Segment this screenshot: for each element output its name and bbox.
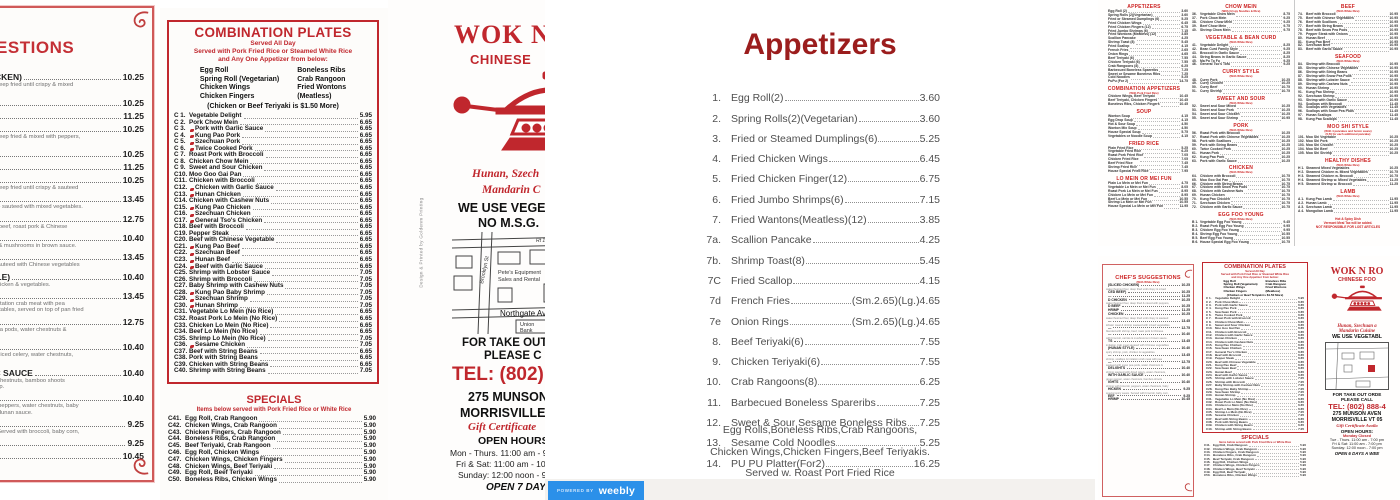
dotted-leader xyxy=(1243,208,1280,209)
mini-restaurant-tagline: CHINESE FOO xyxy=(1314,277,1400,283)
dotted-leader xyxy=(1142,153,1180,154)
dotted-leader xyxy=(1245,227,1283,228)
specials-title: SPECIALS xyxy=(160,394,388,406)
dotted-leader xyxy=(848,181,918,182)
menu-item-row: 13.45 xyxy=(0,194,144,204)
dotted-leader xyxy=(0,259,121,260)
dotted-leader xyxy=(1220,154,1280,155)
spicy-chili-icon xyxy=(190,129,194,132)
appetizer-item-row: 8.Beef Teriyaki(6)7.55 xyxy=(705,328,940,348)
dotted-leader xyxy=(0,182,121,183)
dotted-leader xyxy=(255,150,358,151)
chefs-menu-items: (SLICED CHICKEN)10.25waterchestnut flour… xyxy=(0,72,144,464)
dotted-leader xyxy=(1153,137,1180,138)
dotted-leader xyxy=(285,288,357,289)
dotted-leader xyxy=(1227,27,1282,28)
appetizer-item-row: 7eOnion Rings(Sm.2.65)(Lg.)4.65 xyxy=(705,307,940,327)
dotted-leader xyxy=(266,157,358,158)
menu-item-row: DELIGHTS10.40 xyxy=(0,342,144,352)
dotted-leader xyxy=(1326,39,1389,40)
dotted-leader xyxy=(1113,296,1179,297)
takeout-line-1: FOR TAKE OUT xyxy=(462,337,547,349)
menu-item-row: B 6.House Special Egg Foo Young10.75 xyxy=(1192,241,1290,245)
dotted-leader xyxy=(1353,78,1389,79)
menu-item-row: HICKEN9.25 xyxy=(0,419,144,429)
dotted-leader xyxy=(1131,118,1180,119)
specials-items: C41.Egg Roll, Crab Rangoon5.90C42.Chicke… xyxy=(160,416,388,484)
appetizer-option: Chicken Fingers xyxy=(200,93,279,102)
appetizer-option: (Meatless) xyxy=(297,93,346,102)
dotted-leader xyxy=(1249,419,1297,420)
dotted-leader xyxy=(1236,177,1280,178)
menu-item-row: C50.Boneless Ribs, Chicken Wings5.90 xyxy=(168,477,376,484)
menu-item-row: WITH GARLIC SAUCE10.40 xyxy=(0,368,144,378)
dotted-leader xyxy=(1134,121,1181,122)
dotted-leader xyxy=(250,301,358,302)
appetizer-option: Boneless Ribs xyxy=(297,67,346,76)
dotted-leader xyxy=(1359,70,1388,71)
dotted-leader xyxy=(1348,101,1389,102)
appetizer-option: Fried Wontons xyxy=(297,84,346,93)
dotted-leader xyxy=(878,141,918,142)
dotted-leader xyxy=(1241,299,1297,300)
appetizer-item-row: 9.Chicken Teriyaki(6)7.55 xyxy=(705,348,940,368)
dotted-leader xyxy=(270,366,357,367)
dotted-leader xyxy=(1160,20,1180,21)
dotted-leader xyxy=(1247,333,1297,334)
dotted-leader xyxy=(0,324,121,325)
dotted-leader xyxy=(1328,204,1389,205)
dotted-leader xyxy=(1338,23,1389,24)
dotted-leader xyxy=(1242,356,1297,357)
dotted-leader xyxy=(1121,399,1180,400)
combo-items: C 1.Vegetable Delight5.95C 2.Pork Chow M… xyxy=(174,113,372,375)
dotted-leader xyxy=(1113,355,1179,356)
spicy-chili-icon xyxy=(190,207,194,210)
dotted-leader xyxy=(1343,105,1389,106)
dotted-leader xyxy=(1249,409,1297,410)
cuisine-line-1: Hunan, Szech xyxy=(472,168,539,180)
dotted-leader xyxy=(1145,375,1179,376)
dotted-leader xyxy=(1134,165,1181,166)
dotted-leader xyxy=(242,248,358,249)
powered-by-label: POWERED BY xyxy=(557,488,594,493)
spicy-chili-icon xyxy=(190,292,194,295)
spicy-chili-icon xyxy=(190,188,194,191)
mini-wok-logo-icon xyxy=(1330,285,1384,317)
hours-line-1: Mon - Thurs. 11:00 am - 9:30 xyxy=(450,448,559,458)
dotted-leader xyxy=(260,353,358,354)
corner-flourish-icon xyxy=(132,10,150,28)
restaurant-name: WOK N xyxy=(454,20,551,50)
dotted-leader xyxy=(805,344,919,345)
dotted-leader xyxy=(0,298,121,299)
dotted-leader xyxy=(1334,212,1389,213)
menu-item-row: 55.Sweet and Sour Shrimp10.95 xyxy=(1192,117,1290,121)
dotted-leader xyxy=(1227,20,1282,21)
dotted-leader xyxy=(1244,185,1281,186)
menu-item-row: HRIMP10.45 xyxy=(0,451,144,461)
appetizer-option: Chicken Wings xyxy=(200,84,279,93)
dotted-leader xyxy=(1254,406,1297,407)
dotted-leader xyxy=(1238,309,1298,310)
dotted-leader xyxy=(1249,389,1297,390)
dotted-leader xyxy=(1349,35,1389,36)
dotted-leader xyxy=(791,303,851,304)
dotted-leader xyxy=(1255,459,1299,460)
gift-certificate-line: Gift Certificate xyxy=(468,421,536,433)
dotted-leader xyxy=(1129,51,1180,52)
dotted-leader xyxy=(273,448,362,449)
dotted-leader xyxy=(1158,102,1178,103)
dotted-leader xyxy=(1351,82,1389,83)
dotted-leader xyxy=(1253,429,1298,430)
dotted-leader xyxy=(1353,185,1389,186)
appetizer-item-row: 6.Fried Jumbo Shrimps(6)7.15 xyxy=(705,185,940,205)
menu-item-row: EEF9.25 xyxy=(0,438,144,448)
thumbnail-footer-note: NOT RESPONSIBLE FOR LOST ARTICLES xyxy=(1298,225,1398,229)
dotted-leader xyxy=(1136,125,1180,126)
weebly-logo: weebly xyxy=(599,485,635,497)
dotted-leader xyxy=(790,324,851,325)
appetizer-item-row: 5.Fried Chicken Finger(12)6.75 xyxy=(705,165,940,185)
svg-text:Bank: Bank xyxy=(520,328,533,334)
menu-item-row: C40.Shrimp with String Beans7.05 xyxy=(174,368,372,375)
dotted-leader xyxy=(270,327,357,328)
dotted-leader xyxy=(271,203,358,204)
dotted-leader xyxy=(1231,201,1281,202)
dotted-leader xyxy=(1128,292,1179,293)
dotted-leader xyxy=(1258,403,1297,404)
dotted-leader xyxy=(242,137,358,138)
mini-restaurant-name: WOK N RO xyxy=(1314,266,1400,277)
dotted-leader xyxy=(1349,85,1389,86)
svg-text:Sales and Rental: Sales and Rental xyxy=(498,277,540,283)
appetizer-item-row: 7.Fried Wantons(Meatless)(12)3.85 xyxy=(705,206,940,226)
appetizer-option: Crab Rangoon xyxy=(297,76,346,85)
dotted-leader xyxy=(1131,79,1181,80)
dotted-leader xyxy=(0,131,121,132)
dotted-leader xyxy=(1232,150,1280,151)
address-line-2: MORRISVILLE xyxy=(460,406,545,420)
dotted-leader xyxy=(1233,23,1282,24)
dotted-leader xyxy=(1243,346,1298,347)
dotted-leader xyxy=(12,279,121,280)
dotted-leader xyxy=(277,441,361,442)
dotted-leader xyxy=(1137,40,1181,41)
dotted-leader xyxy=(1164,208,1179,209)
dotted-leader xyxy=(1250,243,1281,244)
dotted-leader xyxy=(1239,50,1283,51)
dotted-leader xyxy=(35,375,121,376)
dotted-leader xyxy=(276,190,358,191)
combo-title: COMBINATION PLATES xyxy=(174,25,372,40)
cuisine-line-2: Mandarin C xyxy=(482,184,540,196)
dotted-leader xyxy=(1117,395,1182,396)
dotted-leader xyxy=(253,216,358,217)
address-line-1: 275 MUNSON xyxy=(468,390,548,404)
appetizer-item-row: 11.Barbecued Boneless Spareribs7.25 xyxy=(705,388,940,408)
dotted-leader xyxy=(1241,116,1281,117)
dotted-leader xyxy=(1161,106,1179,107)
dotted-leader xyxy=(1256,399,1297,400)
dotted-leader xyxy=(1259,139,1280,140)
dotted-leader xyxy=(1148,200,1178,201)
dotted-leader xyxy=(1244,322,1297,323)
dotted-leader xyxy=(1120,382,1179,383)
dotted-leader xyxy=(1237,369,1297,370)
dotted-leader xyxy=(1355,20,1389,21)
dotted-leader xyxy=(877,405,919,406)
dotted-leader xyxy=(242,255,358,256)
open-7-days-line: OPEN 7 DAYS xyxy=(486,482,553,493)
dotted-leader xyxy=(1140,161,1181,162)
combination-plates-menu-image[interactable]: COMBINATION PLATES Served All Day Served… xyxy=(160,8,388,500)
dotted-leader xyxy=(265,131,357,132)
dotted-leader xyxy=(1141,63,1181,64)
dotted-leader xyxy=(1223,93,1281,94)
dotted-leader xyxy=(1236,16,1283,17)
dotted-leader xyxy=(1156,98,1178,99)
menu-item-row: HRIMP10.45 xyxy=(1106,398,1190,402)
dotted-leader xyxy=(272,275,358,276)
dotted-leader xyxy=(1252,319,1298,320)
combination-plates-box: COMBINATION PLATES Served All Day Served… xyxy=(167,20,379,384)
dotted-leader xyxy=(1243,316,1297,317)
menu-item-row: 83.Beef with Garlic Sauce10.95 xyxy=(1298,48,1398,52)
menu-item-row: A 4.Mongolian Lamb11.95 xyxy=(1298,210,1398,214)
dotted-leader xyxy=(1240,231,1283,232)
dotted-leader xyxy=(1243,223,1283,224)
dotted-leader xyxy=(285,462,362,463)
dotted-leader xyxy=(1221,62,1282,63)
dotted-leader xyxy=(1224,85,1280,86)
dotted-leader xyxy=(1239,120,1280,121)
dotted-leader xyxy=(1332,117,1388,118)
appetizer-item-row: 1.Egg Roll(2)3.60 xyxy=(705,84,940,104)
dotted-leader xyxy=(1261,386,1297,387)
dotted-leader xyxy=(1238,162,1281,163)
appetizers-list: 1.Egg Roll(2)3.602.Spring Rolls(2)(Veget… xyxy=(705,84,940,470)
appetizers-title: Appetizers xyxy=(545,28,1095,62)
menu-item-row: IGHTS10.40 xyxy=(0,393,144,403)
dotted-leader xyxy=(0,240,121,241)
dotted-leader xyxy=(1244,193,1280,194)
dotted-leader xyxy=(1248,189,1280,190)
dotted-leader xyxy=(279,428,362,429)
combo-appetizer-options: Egg RollSpring Roll (Vegetarian)Chicken … xyxy=(174,67,372,101)
dotted-leader xyxy=(1260,466,1299,467)
mini-open-6-days: OPEN 6 DAYS A WEE xyxy=(1314,451,1400,456)
dotted-leader xyxy=(1335,93,1388,94)
dotted-leader xyxy=(274,468,361,469)
takeout-line-2: PLEASE C xyxy=(484,350,542,362)
menu-item-row: CED BEEF)10.25 xyxy=(0,98,144,108)
combo-subtitle-3: and Any One Appetizer from below: xyxy=(174,56,372,64)
pupu-note-3: Served w. Roast Port Fried Rice xyxy=(545,467,1095,479)
dotted-leader xyxy=(785,100,919,101)
wok-n-roll-menu-page: SUGGESTIONS ith White Rice (SLICED CHICK… xyxy=(0,0,1400,500)
dotted-leader xyxy=(1159,192,1181,193)
menu-item-row: 98.Kung Pao Scallops11.45 xyxy=(1298,118,1398,122)
phone-number[interactable]: TEL: (802) 8 xyxy=(452,364,560,386)
dotted-leader xyxy=(1125,314,1179,315)
dotted-leader xyxy=(1114,341,1179,342)
menu-item-row: D CHICKEN10.25 xyxy=(0,124,144,134)
dotted-leader xyxy=(0,349,121,350)
print-credit-vertical-text: Design & Printed by Goldenm Printing xyxy=(419,148,424,338)
dotted-leader xyxy=(1231,66,1282,67)
dotted-leader xyxy=(1333,155,1389,156)
dotted-leader xyxy=(1152,28,1181,29)
combo-subtitle-2: Served with Pork Fried Rice or Steamed W… xyxy=(174,48,372,56)
dotted-leader xyxy=(1254,343,1297,344)
dotted-leader xyxy=(1157,36,1180,37)
dotted-leader xyxy=(1129,299,1180,300)
dotted-leader xyxy=(24,79,121,80)
spicy-chili-icon xyxy=(190,142,194,145)
appetizer-item-row: 7dFrench Fries(Sm.2.65)(Lg.)4.65 xyxy=(705,287,940,307)
dotted-leader xyxy=(1121,310,1180,311)
chefs-suggestions-menu-image[interactable]: SUGGESTIONS ith White Rice (SLICED CHICK… xyxy=(0,6,154,482)
appetizer-option: Spring Roll (Vegetarian) xyxy=(200,76,279,85)
dotted-leader xyxy=(813,242,919,243)
dotted-leader xyxy=(264,222,358,223)
menu-item-row: TS13.45 xyxy=(0,252,144,262)
dotted-leader xyxy=(1258,449,1299,450)
appetizer-item-row: 10.Crab Rangoons(8)6.25 xyxy=(705,368,940,388)
dotted-leader xyxy=(1129,55,1180,56)
mini-chefs-suggestions-card: CHEF'S SUGGESTIONS (With White Rice) (SL… xyxy=(1102,264,1194,497)
dotted-leader xyxy=(793,283,918,284)
menu-item-row: 105.Moo Shi Shrimp10.25 xyxy=(1298,152,1398,156)
dotted-leader xyxy=(1218,89,1280,90)
dotted-leader xyxy=(1330,89,1388,90)
dotted-leader xyxy=(260,334,358,335)
dotted-leader xyxy=(1159,71,1180,72)
menu-item-row: C50.Boneless Ribs, Chicken Wings5.90 xyxy=(1204,474,1306,477)
dotted-leader xyxy=(1136,348,1179,349)
menu-item-row: (SLICED CHICKEN)10.25 xyxy=(0,72,144,82)
dotted-leader xyxy=(1129,83,1178,84)
dotted-leader xyxy=(1249,423,1297,424)
dotted-leader xyxy=(818,384,918,385)
dotted-leader xyxy=(1141,285,1179,286)
menu-cover-thumbnail-image[interactable]: CHEF'S SUGGESTIONS (With White Rice) (SL… xyxy=(1098,256,1400,500)
appetizer-item-row: 4.Fried Chicken Wings6.45 xyxy=(705,145,940,165)
dotted-leader xyxy=(1241,393,1297,394)
dotted-leader xyxy=(1154,196,1180,197)
dotted-leader xyxy=(1260,453,1299,454)
appetizer-item-row: 2.Spring Rolls(2)(Vegetarian)3.60 xyxy=(705,104,940,124)
dotted-leader xyxy=(821,364,918,365)
spicy-chili-icon xyxy=(190,214,194,217)
menu-item-row: 63.Pork with Garlic Sauce10.25 xyxy=(1192,160,1290,164)
svg-text:Northgate Av: Northgate Av xyxy=(500,309,546,318)
menu-item-row: (HUNAN STYLE)10.40 xyxy=(0,272,144,282)
dotted-leader xyxy=(1355,113,1389,114)
dotted-leader xyxy=(1130,48,1180,49)
dotted-leader xyxy=(0,400,121,401)
dotted-leader xyxy=(1237,108,1281,109)
dotted-leader xyxy=(845,202,919,203)
dotted-leader xyxy=(1248,353,1297,354)
spicy-chili-icon xyxy=(190,260,194,263)
dotted-leader xyxy=(0,458,121,459)
dotted-leader xyxy=(1258,476,1299,477)
svg-text:Pete's Equipment: Pete's Equipment xyxy=(498,270,541,276)
restaurant-tagline: CHINESE xyxy=(470,52,531,67)
dotted-leader xyxy=(0,118,121,119)
dotted-leader xyxy=(1253,413,1298,414)
menu-item-row: House Special Lo Mein or Mei Fun11.95 xyxy=(1100,205,1188,209)
dotted-leader xyxy=(1337,139,1389,140)
menu-item-row: CHICKEN10.25 xyxy=(0,175,144,185)
dotted-leader xyxy=(1254,336,1298,337)
dotted-leader xyxy=(1219,81,1281,82)
corner-flourish-icon xyxy=(1184,265,1193,274)
dotted-leader xyxy=(275,314,357,315)
dotted-leader xyxy=(1248,376,1297,377)
dotted-leader xyxy=(1226,197,1281,198)
spicy-chili-icon xyxy=(190,246,194,249)
dotted-leader xyxy=(1257,456,1299,457)
no-msg-line: NO M.S.G. xyxy=(478,216,539,230)
menu-item-row: H 5.Steamed Shrimp w. Broccoli11.25 xyxy=(1298,183,1398,187)
dotted-leader xyxy=(1113,327,1179,328)
dotted-leader xyxy=(0,156,121,157)
dotted-leader xyxy=(1331,43,1388,44)
dotted-leader xyxy=(1348,74,1388,75)
dotted-leader xyxy=(243,176,357,177)
weebly-badge[interactable]: POWERED BY weebly xyxy=(548,481,644,500)
dotted-leader xyxy=(1113,361,1179,362)
dotted-leader xyxy=(868,222,919,223)
dotted-leader xyxy=(1232,31,1283,32)
dotted-leader xyxy=(1329,143,1389,144)
dotted-leader xyxy=(1144,157,1180,158)
specials-subtitle: Items below served with Pork Fried Rice … xyxy=(160,407,388,413)
dotted-leader xyxy=(1127,368,1179,369)
dotted-leader xyxy=(279,482,362,483)
dotted-leader xyxy=(1150,172,1181,173)
dotted-leader xyxy=(247,347,358,348)
dotted-leader xyxy=(265,268,358,269)
dotted-leader xyxy=(1136,44,1181,45)
full-menu-thumbnail-image[interactable]: APPETIZERSEgg Roll (2)3.60Spring Rolls (… xyxy=(1098,0,1400,246)
dotted-leader xyxy=(0,201,121,202)
dotted-leader xyxy=(1255,379,1297,380)
vegetable-oil-line: WE USE VEGE xyxy=(458,201,546,215)
dotted-leader xyxy=(0,169,121,170)
dotted-leader xyxy=(1344,51,1389,52)
dotted-leader xyxy=(1344,27,1389,28)
dotted-leader xyxy=(1135,59,1180,60)
dotted-leader xyxy=(283,434,362,435)
corner-flourish-icon xyxy=(1184,487,1193,496)
dotted-leader xyxy=(1257,363,1297,364)
column-divider xyxy=(1294,0,1295,246)
appetizer-item-row: 7a.Scallion Pancake4.25 xyxy=(705,226,940,246)
chefs-menu-title: SUGGESTIONS xyxy=(0,38,144,58)
dotted-leader xyxy=(1238,235,1280,236)
dotted-leader xyxy=(1123,389,1181,390)
appetizer-item-row: 7b.Shrimp Toast(8)5.45 xyxy=(705,246,940,266)
menu-item-row: Vegetables or Noodle Soup4.15 xyxy=(1100,135,1188,139)
dotted-leader xyxy=(1138,129,1181,130)
mini-combination-plates-card: COMBINATION PLATES Served All Day Served… xyxy=(1200,260,1310,500)
dotted-leader xyxy=(1367,181,1388,182)
